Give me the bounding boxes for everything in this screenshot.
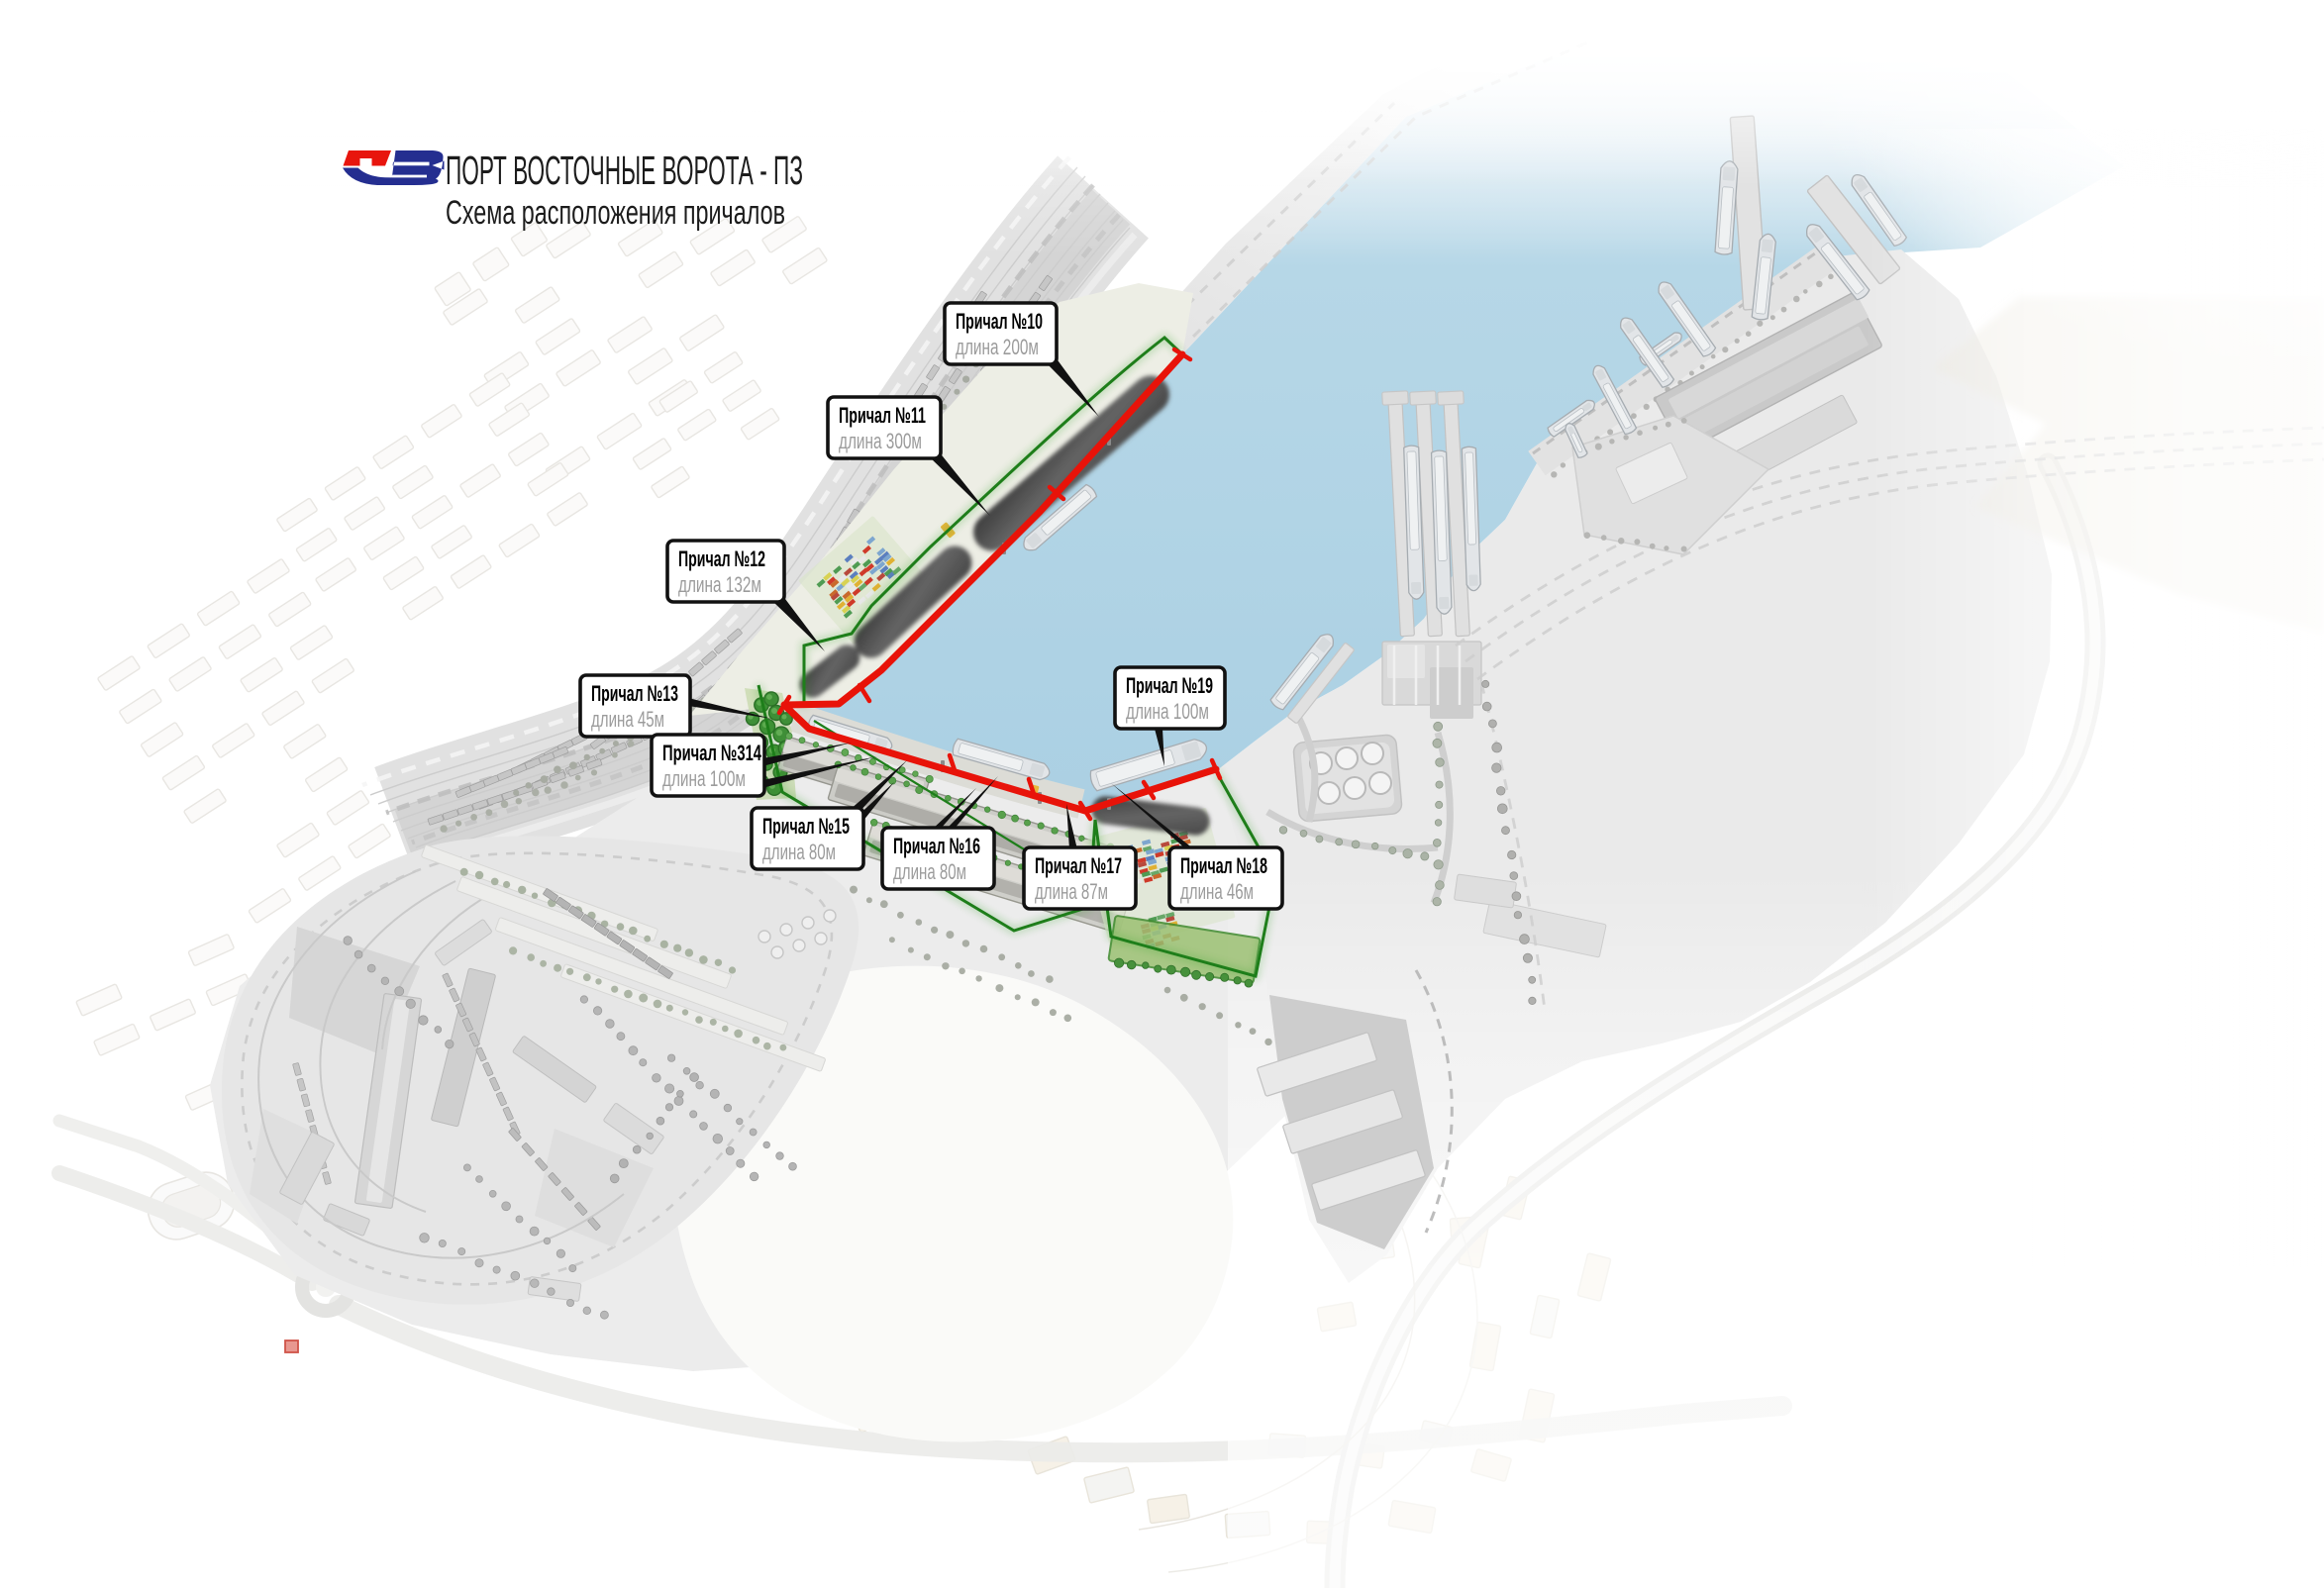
svg-text:длина 100м: длина 100м xyxy=(662,766,746,791)
svg-text:длина 45м: длина 45м xyxy=(591,707,664,732)
svg-text:Причал №314: Причал №314 xyxy=(662,741,761,765)
svg-text:Причал №16: Причал №16 xyxy=(893,834,980,858)
svg-text:длина 80м: длина 80м xyxy=(762,840,836,864)
svg-text:Причал №13: Причал №13 xyxy=(591,681,678,706)
svg-text:Причал №19: Причал №19 xyxy=(1126,673,1213,698)
svg-text:длина 200м: длина 200м xyxy=(956,335,1039,359)
svg-text:Причал №12: Причал №12 xyxy=(678,546,765,571)
svg-text:длина 132м: длина 132м xyxy=(678,572,761,597)
svg-text:длина 80м: длина 80м xyxy=(893,859,966,884)
svg-text:Причал №18: Причал №18 xyxy=(1180,853,1267,878)
svg-text:длина 300м: длина 300м xyxy=(839,429,922,453)
svg-text:Причал №10: Причал №10 xyxy=(956,309,1043,334)
svg-text:Причал №15: Причал №15 xyxy=(762,814,850,839)
svg-text:Причал №17: Причал №17 xyxy=(1035,853,1122,878)
svg-text:ПОРТ ВОСТОЧНЫЕ ВОРОТА - ПЗ: ПОРТ ВОСТОЧНЫЕ ВОРОТА - ПЗ xyxy=(446,148,803,193)
svg-text:длина 87м: длина 87м xyxy=(1035,879,1108,904)
svg-text:длина 100м: длина 100м xyxy=(1126,699,1209,724)
svg-text:Схема расположения причалов: Схема расположения причалов xyxy=(446,194,785,232)
svg-text:длина 46м: длина 46м xyxy=(1180,879,1254,904)
svg-text:Причал №11: Причал №11 xyxy=(839,403,926,428)
